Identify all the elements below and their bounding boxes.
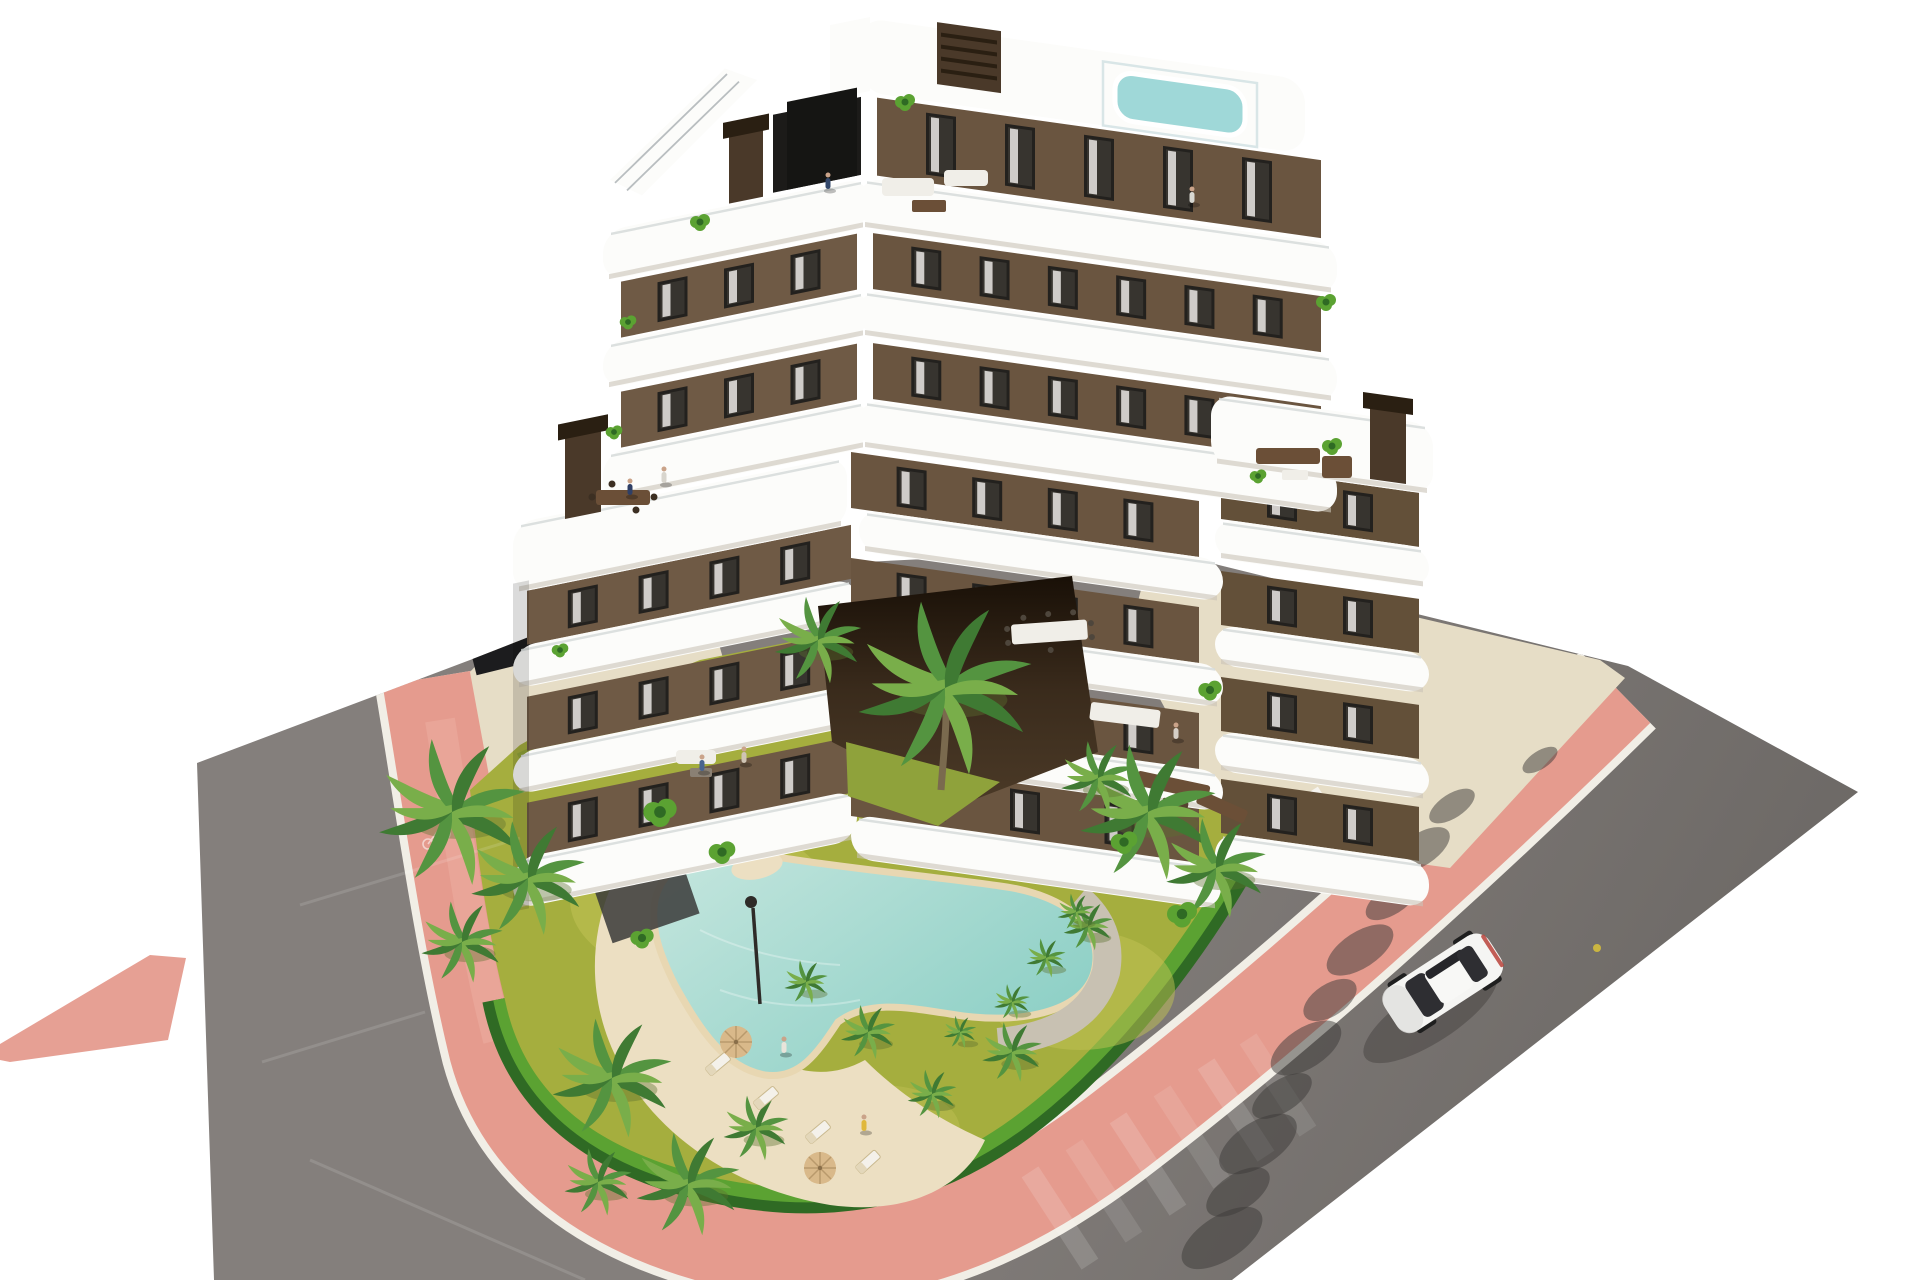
window-curtain — [985, 371, 993, 404]
window-curtain — [902, 471, 910, 504]
person — [628, 484, 633, 495]
person-head — [662, 467, 667, 472]
person — [826, 178, 831, 189]
window-curtain — [785, 549, 793, 581]
window-curtain — [985, 261, 993, 294]
window-curtain — [1272, 590, 1280, 621]
window-curtain — [714, 775, 722, 809]
person-shadow — [860, 1131, 872, 1136]
window-curtain — [644, 683, 652, 715]
window-curtain — [1121, 390, 1129, 423]
leaf-on-road — [1593, 944, 1601, 952]
person-shadow — [780, 1053, 792, 1058]
window-curtain — [663, 394, 671, 428]
window-curtain — [1128, 503, 1136, 536]
window-curtain — [1272, 696, 1280, 727]
person-head — [1190, 187, 1195, 192]
window-curtain — [1247, 162, 1255, 217]
palm-shadow — [1009, 1010, 1031, 1017]
person-shadow — [660, 483, 672, 488]
window-curtain — [1053, 492, 1061, 525]
window-curtain — [573, 592, 581, 624]
person-shadow — [626, 495, 638, 500]
window-curtain — [1272, 798, 1280, 829]
window-curtain — [1010, 128, 1018, 183]
person-head — [628, 479, 633, 484]
window-curtain — [796, 367, 804, 401]
window-curtain — [1348, 809, 1356, 840]
palm-shadow — [1072, 920, 1095, 927]
person-shadow — [1172, 739, 1184, 744]
parasol — [720, 1026, 752, 1058]
window-curtain — [1189, 290, 1197, 323]
stair-bulkhead — [787, 88, 857, 190]
person — [742, 752, 747, 763]
window-curtain — [573, 804, 581, 838]
building-left-wing — [513, 17, 870, 912]
person-head — [826, 173, 831, 178]
person — [862, 1120, 867, 1131]
window-curtain — [1089, 139, 1097, 194]
window-curtain — [644, 577, 652, 609]
person — [1190, 192, 1195, 203]
window-curtain — [785, 761, 793, 795]
window-curtain — [796, 257, 804, 291]
window-curtain — [1168, 151, 1176, 206]
window-curtain — [729, 380, 737, 414]
window-curtain — [573, 698, 581, 730]
person-shadow — [740, 763, 752, 768]
person-head — [700, 755, 705, 760]
shrub — [606, 425, 623, 439]
person-head — [742, 747, 747, 752]
chimney-left-terrace — [565, 428, 601, 519]
person — [662, 472, 667, 483]
window-curtain — [729, 270, 737, 304]
far-sidewalk-sliver — [0, 955, 186, 1062]
palm-shadow — [958, 1041, 978, 1048]
person-shadow — [1188, 203, 1200, 208]
person — [1174, 728, 1179, 739]
window-curtain — [1348, 601, 1356, 632]
chimney-right-terrace — [1370, 405, 1406, 484]
window-curtain — [1053, 270, 1061, 303]
window-curtain — [1128, 609, 1136, 642]
window-curtain — [714, 563, 722, 595]
window-curtain — [1348, 707, 1356, 738]
window-curtain — [977, 482, 985, 515]
person-head — [782, 1037, 787, 1042]
window-curtain — [1053, 380, 1061, 413]
window-curtain — [714, 669, 722, 701]
window-curtain — [1015, 793, 1023, 828]
window-curtain — [663, 284, 671, 318]
window-curtain — [785, 655, 793, 687]
person — [700, 760, 705, 771]
window-curtain — [1121, 280, 1129, 313]
window-curtain — [1258, 299, 1266, 332]
person-head — [1174, 723, 1179, 728]
render-canvas — [0, 0, 1920, 1280]
window-curtain — [931, 117, 939, 172]
window-curtain — [916, 361, 924, 394]
person-shadow — [698, 771, 710, 776]
person-shadow — [824, 189, 836, 194]
parasol — [804, 1152, 836, 1184]
window-curtain — [916, 251, 924, 284]
person — [782, 1042, 787, 1053]
architectural-render — [0, 0, 1920, 1280]
person-head — [862, 1115, 867, 1120]
window-curtain — [1348, 495, 1356, 526]
window-curtain — [1189, 400, 1197, 433]
